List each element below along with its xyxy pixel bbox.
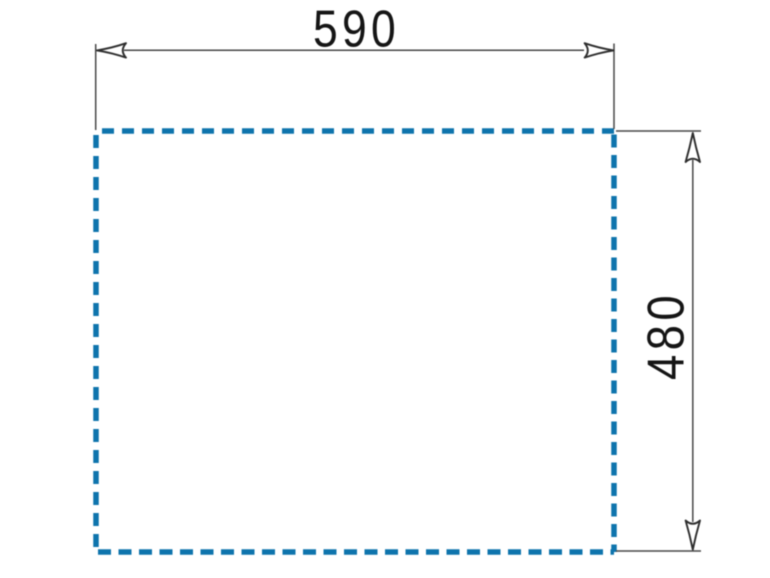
svg-text:480: 480 <box>637 291 695 380</box>
svg-text:590: 590 <box>313 0 400 58</box>
